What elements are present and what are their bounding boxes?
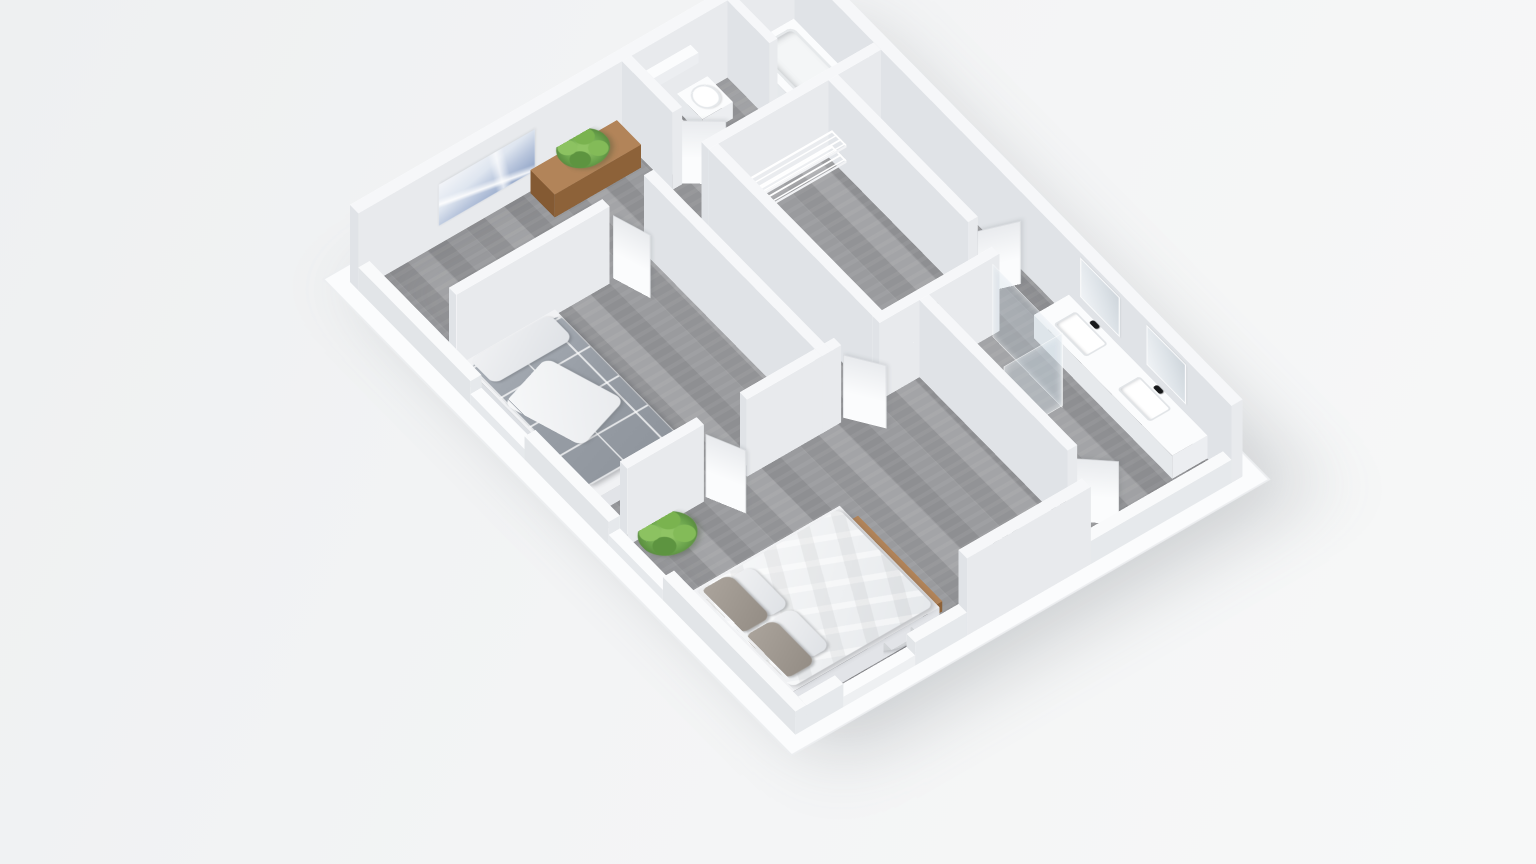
media-wall	[959, 556, 1091, 636]
bathroom-wall-south-face-w	[701, 142, 708, 226]
wall-ne-face-s	[1231, 399, 1242, 483]
hall-master-door-panel	[843, 355, 887, 433]
floorplan-viewport	[0, 0, 1536, 864]
wall-nw-face-w	[350, 205, 358, 291]
